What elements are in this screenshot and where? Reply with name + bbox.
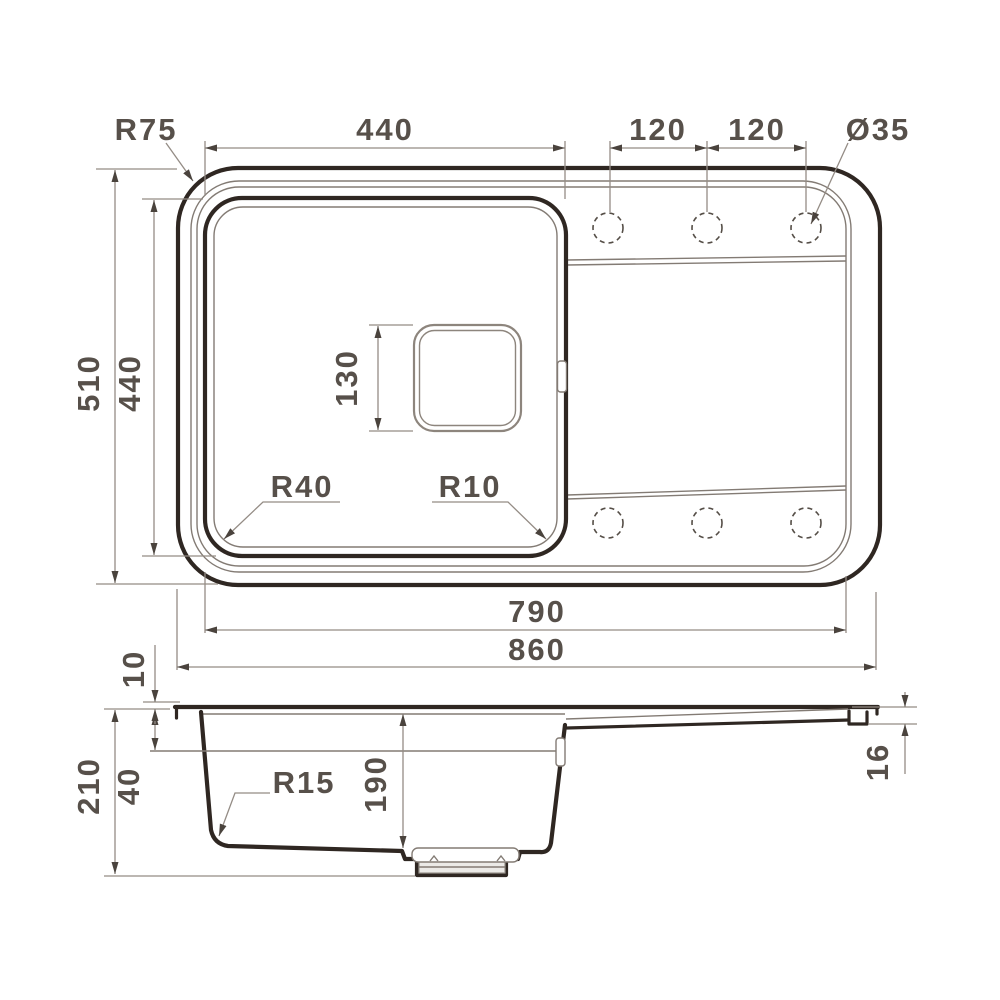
tap-hole-top-3 bbox=[791, 213, 821, 243]
drainboard-ridge-bottom-2 bbox=[567, 490, 846, 499]
leader-bowl-corner-radius-inner bbox=[432, 502, 546, 539]
drainboard-ridge-top-2 bbox=[567, 261, 846, 265]
tap-hole-top-2 bbox=[692, 213, 722, 243]
label-bowl-bottom-radius: R15 bbox=[273, 765, 336, 800]
label-edge-thickness: 16 bbox=[860, 743, 895, 781]
label-hole-pitch-a: 120 bbox=[629, 112, 687, 147]
sink-drawing-svg: R75 440 120 120 Ø35 510 440 130 R40 R10 … bbox=[0, 0, 1000, 1000]
overflow-notch-side-view bbox=[556, 738, 565, 766]
label-usable-length: 790 bbox=[508, 594, 566, 629]
drainboard-underside bbox=[567, 720, 849, 728]
bowl-inner-edge bbox=[214, 207, 557, 547]
tap-hole-bottom-2 bbox=[692, 508, 722, 538]
drain-square-inner bbox=[420, 331, 516, 426]
label-bowl-width: 440 bbox=[356, 112, 414, 147]
label-bowl-front-to-back: 440 bbox=[112, 354, 147, 412]
label-hole-diameter: Ø35 bbox=[846, 112, 911, 147]
label-hole-pitch-b: 120 bbox=[728, 112, 786, 147]
drainboard-ridge-top-1 bbox=[567, 256, 846, 260]
edge-drip-tab bbox=[849, 711, 867, 724]
leader-bowl-bottom-radius bbox=[219, 793, 270, 836]
drainboard-ridge-bottom-1 bbox=[567, 486, 846, 495]
leader-bowl-corner-radius-outer bbox=[224, 502, 340, 539]
side-view bbox=[150, 707, 878, 875]
label-bowl-depth: 190 bbox=[358, 755, 393, 813]
technical-drawing-page: R75 440 120 120 Ø35 510 440 130 R40 R10 … bbox=[0, 0, 1000, 1000]
label-overall-length: 860 bbox=[508, 632, 566, 667]
label-overall-height: 210 bbox=[71, 757, 106, 815]
bowl-outer-edge bbox=[205, 198, 566, 556]
label-drain-square: 130 bbox=[329, 349, 364, 407]
label-bowl-corner-radius-inner: R10 bbox=[439, 469, 502, 504]
label-rim-lip-height: 10 bbox=[116, 650, 151, 688]
drain-square-outer bbox=[414, 325, 521, 431]
label-rim-corner-radius: R75 bbox=[115, 112, 178, 147]
tap-hole-bottom-1 bbox=[593, 508, 623, 538]
label-bowl-corner-radius-outer: R40 bbox=[271, 469, 334, 504]
side-view-dimensions: 10 210 40 R15 190 16 bbox=[71, 645, 917, 876]
drainboard-surface-line bbox=[566, 709, 848, 719]
drain-strainer-cap bbox=[412, 848, 519, 862]
overflow-notch-top-view bbox=[558, 361, 567, 392]
label-overall-depth: 510 bbox=[71, 354, 106, 412]
label-ledge-drop: 40 bbox=[111, 767, 146, 805]
leader-rim-corner-radius bbox=[166, 143, 193, 181]
tap-hole-top-1 bbox=[593, 213, 623, 243]
tap-hole-bottom-3 bbox=[791, 508, 821, 538]
